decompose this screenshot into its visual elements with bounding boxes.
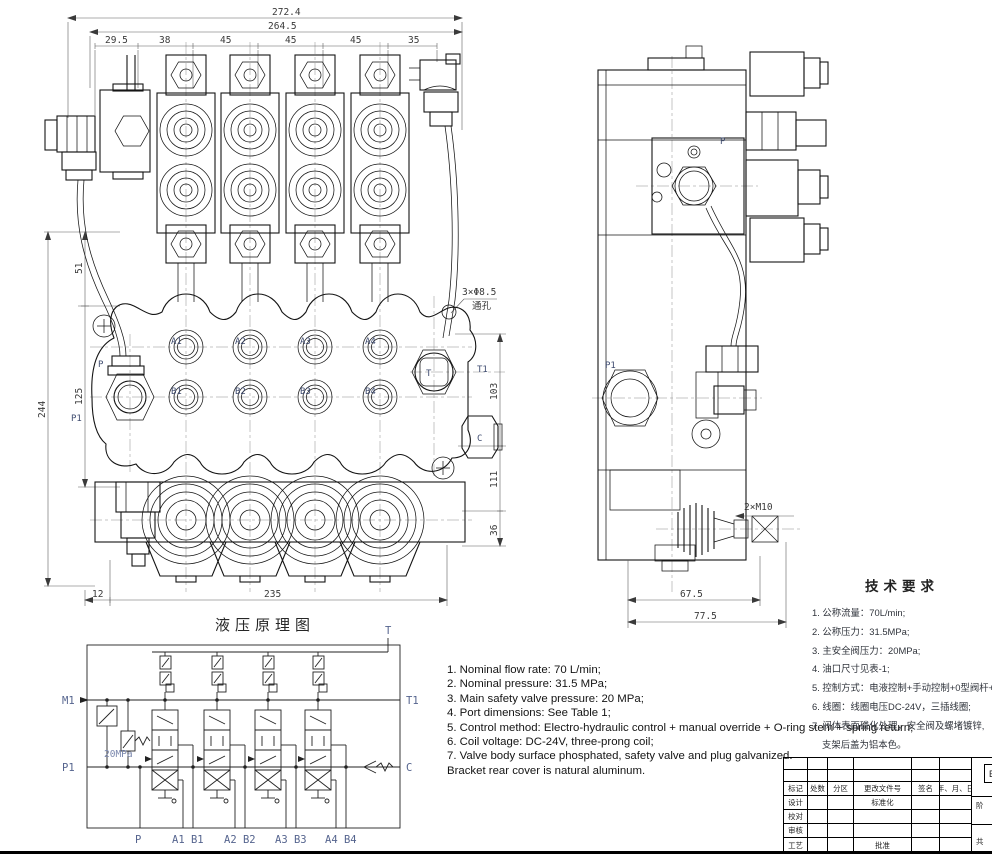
solenoid-coils (746, 52, 828, 262)
dim-111: 111 (489, 471, 500, 488)
cn-note-line: 6. 线圈：线圈电压DC-24V，三插线圈; (812, 698, 992, 717)
schematic-label-p1: P1 (62, 762, 75, 774)
dim-77-5: 77.5 (694, 611, 717, 622)
schematic-bottom-a3b3: A3 B3 (275, 834, 307, 846)
tb-standardization: 标准化 (854, 796, 912, 810)
tb-header-docno: 更改文件号 (854, 782, 912, 796)
tb-partial-mark: E (984, 764, 992, 783)
schematic-label-m1: M1 (62, 695, 75, 707)
side-view-valve-body: 67.5 77.5 2×M10 P P1 (598, 46, 828, 628)
tb-check: 校对 (784, 810, 808, 824)
port-label-p: P (98, 360, 104, 370)
callout-m10: 2×M10 (744, 502, 773, 513)
dim-125: 125 (74, 388, 85, 405)
dim-45b: 45 (285, 35, 296, 46)
junction-dots (105, 698, 348, 769)
schematic-bottom-a4b4: A4 B4 (325, 834, 357, 846)
engineering-drawing-sheet: { "colors": {"line":"#141414","dim_text"… (0, 0, 992, 854)
dim-244: 244 (37, 401, 48, 418)
dim-235: 235 (264, 589, 281, 600)
side-label-p: P (720, 137, 726, 147)
hole-callout-sub: 通孔 (472, 301, 492, 312)
schematic-bottom-p: P (135, 834, 141, 846)
port-label-b1: B1 (171, 387, 182, 397)
schematic-bottom-a1b1: A1 B1 (172, 834, 204, 846)
manual-override-boot (610, 470, 778, 571)
hole-callout: 3×Φ8.5 (462, 287, 496, 298)
tb-header-sign: 签名 (912, 782, 940, 796)
dim-45c: 45 (350, 35, 361, 46)
dim-67-5: 67.5 (680, 589, 703, 600)
port-label-b2: B2 (235, 387, 246, 397)
cn-note-line: 3. 主安全阀压力：20MPa; (812, 642, 992, 661)
tb-approve: 批准 (854, 838, 912, 852)
tb-stage-label: 阶 (976, 800, 983, 811)
tb-header-mark: 标记 (784, 782, 808, 796)
dim-36: 36 (489, 524, 500, 536)
schematic-bottom-a2b2: A2 B2 (224, 834, 256, 846)
cn-note-line: 5. 控制方式：电液控制+手动控制+0型阀杆+弹簧复位; (812, 679, 992, 698)
tb-design: 设计 (784, 796, 808, 810)
dim-45a: 45 (220, 35, 231, 46)
port-label-a1: A1 (171, 337, 182, 347)
dim-35: 35 (408, 35, 419, 46)
cn-note-line: 4. 油口尺寸见表-1; (812, 660, 992, 679)
tb-total-label: 共 (976, 836, 983, 847)
port-label-t1: T1 (477, 365, 488, 375)
tb-header-date: 年、月、日 (940, 782, 971, 796)
dim-38: 38 (159, 35, 171, 46)
dim-29-5: 29.5 (105, 35, 128, 46)
dim-51: 51 (74, 262, 85, 274)
title-block: 标记 处数 分区 更改文件号 签名 年、月、日 设计 标准化 校对 审核 工艺 … (783, 757, 972, 853)
cn-note-line: 1. 公称流量：70L/min; (812, 604, 992, 623)
port-label-t: T (426, 369, 432, 379)
port-label-a2: A2 (235, 337, 246, 347)
dim-264: 264.5 (268, 21, 297, 32)
cn-note-line: 2. 公称压力：31.5MPa; (812, 623, 992, 642)
schematic-label-t1: T1 (406, 695, 419, 707)
hydraulic-schematic: T M1 T1 P1 C 20MPa P A1 B1 A2 B2 A3 B3 A… (62, 625, 419, 846)
tb-process: 工艺 (784, 838, 808, 852)
port-label-p1: P1 (71, 414, 82, 424)
tb-review: 审核 (784, 824, 808, 838)
technical-requirements: 技术要求 1. 公称流量：70L/min; 2. 公称压力：31.5MPa; 3… (812, 575, 992, 754)
front-view-valve-body: A1 A2 A3 A4 B1 B2 B3 B4 P P1 T T1 C (45, 54, 502, 582)
dim-272: 272.4 (272, 7, 301, 18)
schematic-label-20mpa: 20MPa (104, 749, 133, 760)
tb-header-count: 处数 (808, 782, 828, 796)
dim-103: 103 (489, 383, 500, 400)
schematic-label-t: T (385, 625, 392, 637)
port-label-c: C (477, 434, 482, 444)
tb-header-zone: 分区 (828, 782, 854, 796)
cn-note-line: 支架后盖为铝本色。 (812, 736, 992, 755)
right-elbow-fitting (409, 54, 460, 338)
side-label-p1: P1 (605, 361, 616, 371)
manifold (92, 294, 502, 479)
left-end-plate (45, 55, 150, 356)
port-label-b3: B3 (300, 387, 311, 397)
bottom-covers (95, 476, 465, 582)
technical-requirements-title: 技术要求 (812, 575, 992, 595)
cn-note-line: 7. 阀体表面磷化处理，安全阀及螺堵镀锌, (812, 717, 992, 736)
schematic-title: 液压原理图 (215, 617, 315, 634)
title-block-right-partial: E 阶 共 (971, 757, 992, 853)
port-label-a3: A3 (300, 337, 311, 347)
schematic-label-c: C (406, 762, 412, 774)
port-label-b4: B4 (365, 387, 376, 397)
side-pipe-fittings (696, 206, 758, 418)
dim-12: 12 (92, 589, 103, 600)
port-label-a4: A4 (365, 337, 376, 347)
